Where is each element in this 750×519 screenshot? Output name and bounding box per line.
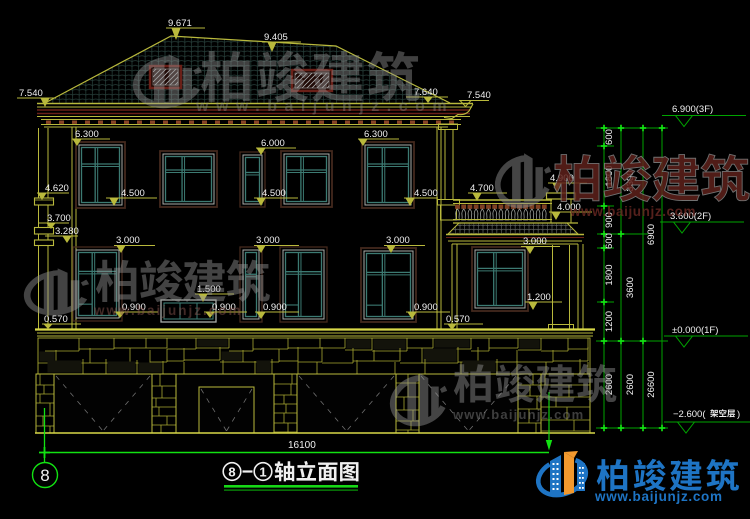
svg-text:−2.600(: −2.600( xyxy=(673,409,706,420)
svg-text:3.280: 3.280 xyxy=(55,226,79,237)
svg-text:600: 600 xyxy=(604,129,615,145)
svg-text:8: 8 xyxy=(40,466,49,485)
svg-text:3.000: 3.000 xyxy=(386,235,410,246)
svg-text:www.baijunjz.com: www.baijunjz.com xyxy=(195,98,454,115)
svg-text:www.baijunjz.com: www.baijunjz.com xyxy=(594,489,723,504)
svg-text:1: 1 xyxy=(259,465,266,480)
svg-text:7.540: 7.540 xyxy=(19,88,43,99)
svg-text:www.baijunjz.com: www.baijunjz.com xyxy=(569,204,696,219)
svg-text:16100: 16100 xyxy=(288,440,316,451)
svg-text:6.300: 6.300 xyxy=(364,129,388,140)
svg-text:www.baijunjz.com: www.baijunjz.com xyxy=(452,407,584,422)
svg-text:4.500: 4.500 xyxy=(121,188,145,199)
svg-text:6.000: 6.000 xyxy=(261,138,285,149)
svg-text:0.570: 0.570 xyxy=(44,314,68,325)
svg-text:8: 8 xyxy=(228,465,235,480)
svg-text:26600: 26600 xyxy=(646,371,657,397)
svg-text:4.500: 4.500 xyxy=(414,188,438,199)
svg-text:6.900(3F): 6.900(3F) xyxy=(672,104,713,115)
svg-text:www.baijunjz.com: www.baijunjz.com xyxy=(93,303,243,318)
svg-text:3600: 3600 xyxy=(625,277,636,298)
svg-text:3.700: 3.700 xyxy=(47,213,71,224)
svg-text:600: 600 xyxy=(604,233,615,249)
svg-text:4.500: 4.500 xyxy=(262,188,286,199)
svg-text:7.540: 7.540 xyxy=(467,90,491,101)
svg-text:1.200: 1.200 xyxy=(527,292,551,303)
svg-text:9.405: 9.405 xyxy=(264,32,288,43)
svg-text:4.700: 4.700 xyxy=(470,183,494,194)
svg-text:3.000: 3.000 xyxy=(116,235,140,246)
svg-text:0.570: 0.570 xyxy=(446,314,470,325)
svg-text:2600: 2600 xyxy=(625,374,636,395)
svg-text:1800: 1800 xyxy=(604,264,615,285)
svg-text:6.300: 6.300 xyxy=(75,129,99,140)
svg-text:3.000: 3.000 xyxy=(256,235,280,246)
svg-text:3.000: 3.000 xyxy=(523,236,547,247)
svg-text:): ) xyxy=(737,409,740,420)
svg-text:6900: 6900 xyxy=(646,224,657,245)
svg-text:0.900: 0.900 xyxy=(263,302,287,313)
svg-text:1200: 1200 xyxy=(604,311,615,332)
svg-text:4.620: 4.620 xyxy=(45,183,69,194)
svg-text:±0.000(1F): ±0.000(1F) xyxy=(672,325,718,336)
svg-text:0.900: 0.900 xyxy=(414,302,438,313)
svg-text:9.671: 9.671 xyxy=(168,18,192,29)
